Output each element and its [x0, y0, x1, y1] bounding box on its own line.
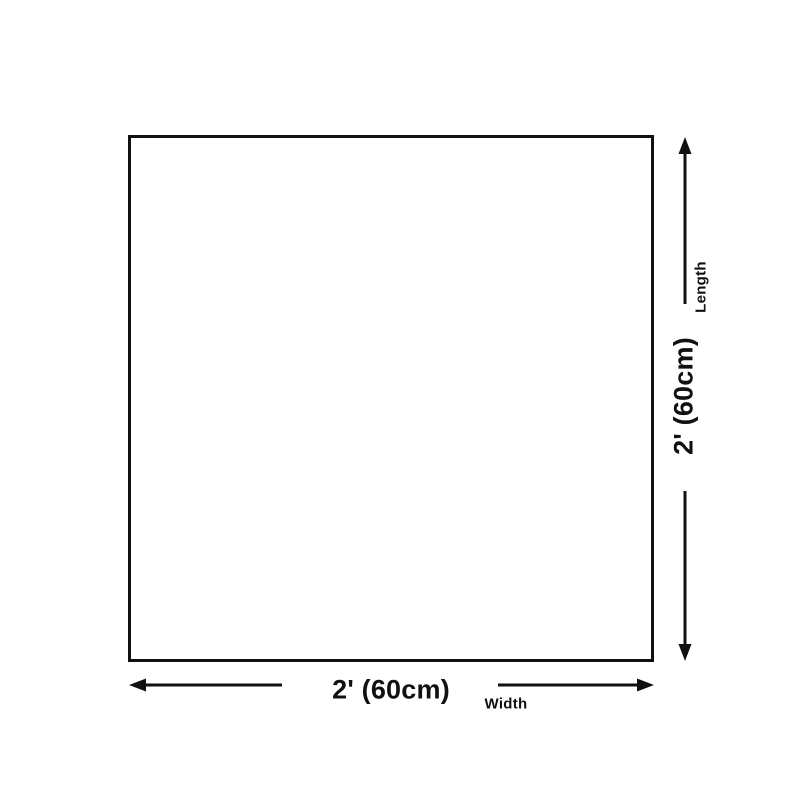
length-up-arrow-icon [677, 137, 693, 305]
length-value-label: 2' (60cm) [671, 337, 698, 455]
product-outline [128, 135, 654, 662]
dimension-diagram: Length 2' (60cm) 2' (60cm) Width [0, 0, 800, 800]
length-axis-label: Length [694, 261, 709, 313]
width-right-arrow-icon [497, 677, 654, 693]
width-value-label: 2' (60cm) [332, 677, 450, 704]
width-left-arrow-icon [129, 677, 283, 693]
length-down-arrow-icon [677, 490, 693, 661]
width-axis-label: Width [484, 697, 527, 712]
